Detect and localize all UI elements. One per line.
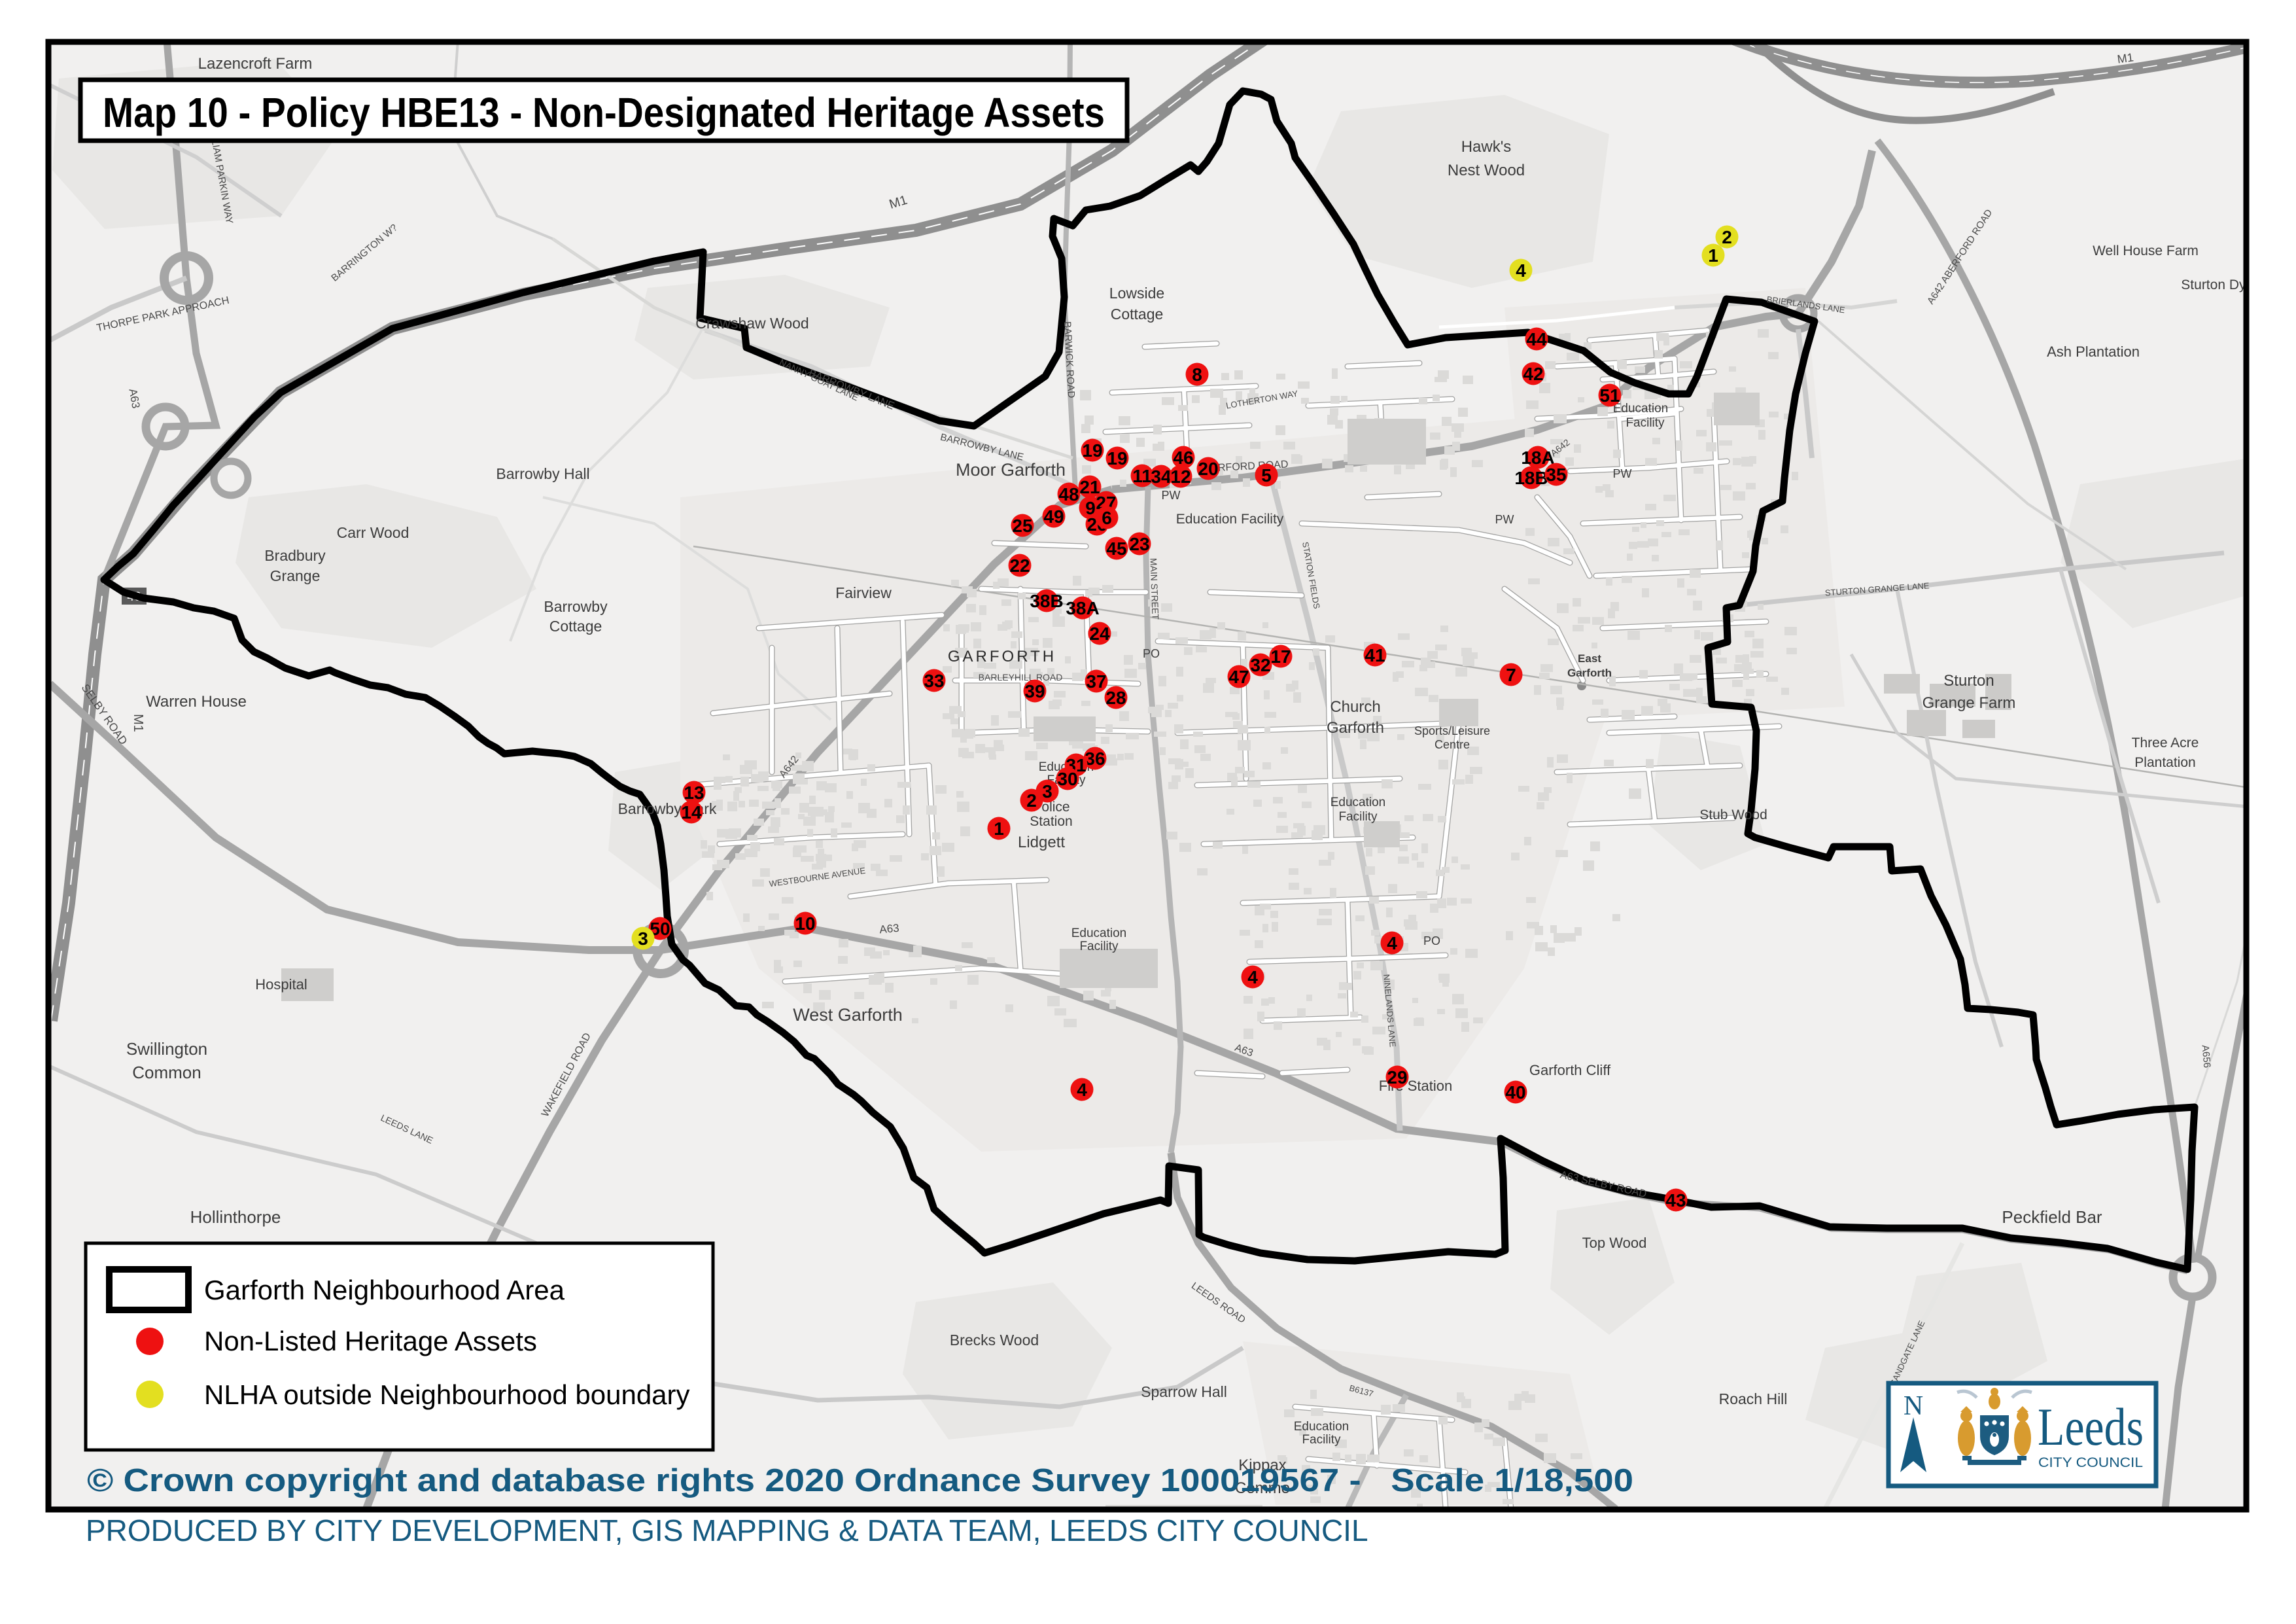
svg-text:Plantation: Plantation <box>2134 755 2195 770</box>
svg-text:Sports/Leisure: Sports/Leisure <box>1414 724 1490 737</box>
svg-text:Leeds: Leeds <box>2038 1397 2144 1456</box>
svg-text:PO: PO <box>1423 934 1440 947</box>
svg-text:51: 51 <box>1599 385 1620 406</box>
svg-text:PO: PO <box>1143 647 1160 660</box>
svg-text:Stub Wood: Stub Wood <box>1699 807 1767 822</box>
svg-text:CITY COUNCIL: CITY COUNCIL <box>2038 1455 2143 1470</box>
svg-text:13: 13 <box>684 783 704 803</box>
svg-text:24: 24 <box>1089 624 1110 644</box>
svg-text:Lowside: Lowside <box>1109 285 1164 302</box>
svg-text:Facility: Facility <box>1079 940 1119 953</box>
svg-text:4: 4 <box>1247 967 1258 987</box>
svg-text:Lidgett: Lidgett <box>1018 834 1065 851</box>
svg-text:4: 4 <box>1516 260 1526 281</box>
svg-text:Garforth Cliff: Garforth Cliff <box>1529 1062 1611 1078</box>
svg-text:Cottage: Cottage <box>549 618 602 635</box>
svg-text:M1: M1 <box>131 714 145 732</box>
svg-text:7: 7 <box>1506 665 1516 685</box>
svg-text:33: 33 <box>924 671 944 691</box>
svg-text:Centre: Centre <box>1435 738 1470 751</box>
svg-text:Education: Education <box>1071 927 1127 940</box>
svg-text:N: N <box>1904 1391 1923 1421</box>
svg-text:17: 17 <box>1270 646 1291 667</box>
svg-text:44: 44 <box>1526 329 1547 349</box>
svg-text:45: 45 <box>1106 538 1126 559</box>
svg-text:18B: 18B <box>1514 468 1548 488</box>
svg-text:Grange: Grange <box>270 567 321 584</box>
svg-text:29: 29 <box>1387 1067 1407 1087</box>
svg-text:Common: Common <box>132 1063 201 1082</box>
svg-text:Garforth: Garforth <box>1327 719 1384 737</box>
svg-text:11: 11 <box>1132 466 1152 486</box>
svg-text:25: 25 <box>1012 516 1032 536</box>
svg-text:23: 23 <box>1129 534 1149 554</box>
svg-text:GARFORTH: GARFORTH <box>948 648 1056 665</box>
svg-text:Education: Education <box>1331 796 1386 809</box>
svg-text:Sparrow Hall: Sparrow Hall <box>1141 1383 1227 1400</box>
svg-text:PW: PW <box>1162 489 1181 502</box>
svg-text:M1: M1 <box>2116 50 2134 65</box>
svg-text:2: 2 <box>1722 227 1732 247</box>
svg-text:1: 1 <box>1708 245 1718 266</box>
svg-text:41: 41 <box>1365 645 1385 665</box>
svg-text:42: 42 <box>1523 364 1543 384</box>
svg-text:NLHA outside Neighbourhood bou: NLHA outside Neighbourhood boundary <box>204 1379 690 1410</box>
svg-text:Barrowby Hall: Barrowby Hall <box>496 465 589 482</box>
svg-text:43: 43 <box>1665 1190 1686 1210</box>
svg-text:East: East <box>1578 652 1601 665</box>
svg-text:Garforth: Garforth <box>1567 667 1612 679</box>
svg-text:Ash Plantation: Ash Plantation <box>2047 344 2140 360</box>
svg-text:MAIN STREET: MAIN STREET <box>1148 558 1160 620</box>
svg-text:3: 3 <box>1042 781 1052 802</box>
svg-text:Facility: Facility <box>1338 810 1378 824</box>
svg-text:20: 20 <box>1198 459 1218 479</box>
svg-text:5: 5 <box>1261 465 1272 485</box>
svg-text:4: 4 <box>1387 933 1397 953</box>
svg-text:Grange Farm: Grange Farm <box>1922 694 2016 712</box>
svg-text:Barrowby: Barrowby <box>544 598 608 615</box>
svg-text:© Crown copyright and database: © Crown copyright and database rights 20… <box>87 1463 1633 1498</box>
svg-text:Sturton: Sturton <box>1943 672 1994 690</box>
svg-text:28: 28 <box>1105 688 1126 708</box>
svg-text:Education: Education <box>1613 402 1669 415</box>
svg-text:38A: 38A <box>1066 598 1099 618</box>
svg-text:Fairview: Fairview <box>835 584 892 601</box>
svg-text:34: 34 <box>1151 467 1172 487</box>
svg-text:Hospital: Hospital <box>255 976 307 993</box>
svg-text:38B: 38B <box>1030 591 1063 611</box>
svg-text:Garforth Neighbourhood Area: Garforth Neighbourhood Area <box>204 1275 565 1305</box>
svg-text:12: 12 <box>1170 467 1191 487</box>
svg-text:19: 19 <box>1082 440 1102 461</box>
svg-text:Cottage: Cottage <box>1111 306 1164 323</box>
svg-text:Swillington: Swillington <box>126 1039 207 1059</box>
svg-text:46: 46 <box>1173 448 1193 468</box>
svg-text:A656: A656 <box>2199 1044 2212 1068</box>
svg-text:Brecks Wood: Brecks Wood <box>950 1332 1039 1349</box>
svg-text:Education Facility: Education Facility <box>1176 512 1284 527</box>
svg-text:Crawshaw Wood: Crawshaw Wood <box>695 315 809 332</box>
svg-text:39: 39 <box>1024 681 1045 701</box>
svg-text:14: 14 <box>681 802 702 822</box>
svg-text:22: 22 <box>1009 556 1030 576</box>
svg-text:Warren House: Warren House <box>146 693 247 711</box>
svg-text:6: 6 <box>1102 508 1112 528</box>
svg-text:48: 48 <box>1058 484 1079 504</box>
svg-text:3: 3 <box>638 928 648 949</box>
svg-text:Lazencroft Farm: Lazencroft Farm <box>198 55 313 73</box>
svg-text:Hawk's: Hawk's <box>1461 138 1512 156</box>
svg-text:BARLEYHILL ROAD: BARLEYHILL ROAD <box>979 672 1063 682</box>
svg-text:A63: A63 <box>879 922 900 936</box>
svg-text:Moor Garforth: Moor Garforth <box>956 460 1066 480</box>
svg-text:PRODUCED BY CITY DEVELOPMENT,: PRODUCED BY CITY DEVELOPMENT, GIS MAPPIN… <box>86 1513 1368 1547</box>
svg-text:47: 47 <box>1228 667 1249 687</box>
svg-text:40: 40 <box>1505 1082 1525 1103</box>
svg-text:35: 35 <box>1546 465 1566 485</box>
svg-text:Facility: Facility <box>1302 1433 1341 1447</box>
svg-text:Bradbury: Bradbury <box>264 547 326 564</box>
svg-text:Education: Education <box>1294 1420 1349 1434</box>
svg-text:10: 10 <box>795 913 815 934</box>
svg-text:19: 19 <box>1107 448 1127 468</box>
svg-text:37: 37 <box>1086 671 1106 692</box>
svg-text:Peckfield Bar: Peckfield Bar <box>2002 1207 2102 1227</box>
svg-text:Facility: Facility <box>1626 416 1665 430</box>
svg-text:1: 1 <box>994 819 1004 839</box>
svg-text:8: 8 <box>1192 364 1202 385</box>
svg-text:Station: Station <box>1030 814 1072 829</box>
svg-text:32: 32 <box>1250 655 1270 675</box>
svg-text:2: 2 <box>1026 790 1037 811</box>
svg-text:Church: Church <box>1330 698 1380 716</box>
svg-text:West Garforth: West Garforth <box>793 1005 903 1025</box>
svg-text:4: 4 <box>1077 1080 1087 1100</box>
svg-text:Map 10 - Policy HBE13 - Non-De: Map 10 - Policy HBE13 - Non-Designated H… <box>103 89 1105 136</box>
svg-text:Roach Hill: Roach Hill <box>1719 1390 1788 1407</box>
svg-text:PW: PW <box>1613 467 1632 480</box>
svg-text:Top Wood: Top Wood <box>1582 1235 1647 1251</box>
svg-text:Nest Wood: Nest Wood <box>1448 162 1525 179</box>
svg-text:49: 49 <box>1043 506 1064 527</box>
svg-text:30: 30 <box>1057 769 1077 789</box>
svg-text:Well House Farm: Well House Farm <box>2093 243 2199 258</box>
svg-text:Hollinthorpe: Hollinthorpe <box>190 1207 281 1227</box>
svg-text:Three Acre: Three Acre <box>2132 735 2199 750</box>
svg-text:36: 36 <box>1085 749 1105 769</box>
svg-text:Carr Wood: Carr Wood <box>337 524 409 541</box>
svg-text:PW: PW <box>1495 513 1514 526</box>
svg-text:Non-Listed Heritage Assets: Non-Listed Heritage Assets <box>204 1326 537 1356</box>
